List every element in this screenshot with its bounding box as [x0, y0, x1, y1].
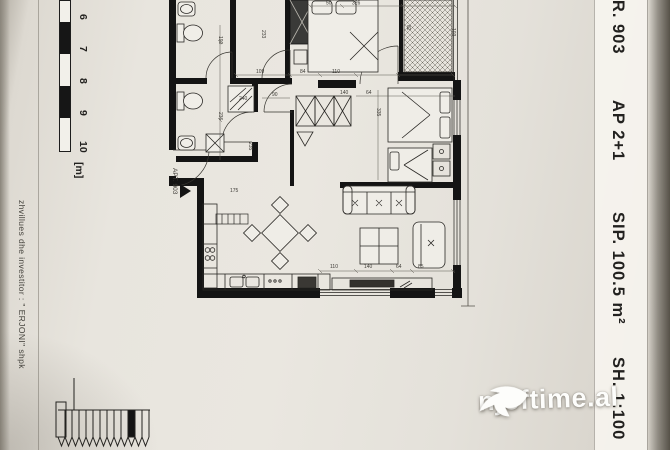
scale-tick-label: 6 [77, 14, 89, 20]
svg-text:190: 190 [217, 36, 223, 45]
scale-tick-label: 7 [77, 46, 89, 52]
paper-right-edge [648, 0, 670, 450]
bird-logo-icon [477, 381, 530, 421]
bathroom-top [177, 2, 203, 42]
svg-text:235: 235 [247, 142, 253, 151]
floor-plan-svg: 109 84 110 90 140 64 50 326 82 103 190 2… [160, 0, 480, 315]
svg-text:82: 82 [405, 25, 411, 31]
scale-tick-label: 8 [77, 78, 89, 84]
scale-unit-label: [m] [73, 162, 85, 178]
svg-text:326: 326 [352, 1, 361, 7]
radiator [216, 214, 248, 224]
surface-label: SIP. 100.5 m² [608, 212, 627, 325]
scale-tick-label: 10 [77, 141, 89, 153]
svg-text:175: 175 [230, 188, 239, 194]
svg-text:233: 233 [260, 30, 266, 39]
bedroom-top [290, 0, 378, 72]
apartment-number-label: NR. 903 [608, 0, 627, 55]
svg-text:APT. 903: APT. 903 [171, 168, 178, 195]
svg-text:335: 335 [375, 108, 381, 117]
svg-text:64: 64 [366, 90, 372, 96]
svg-text:109: 109 [256, 69, 265, 75]
site-sketch-svg [50, 372, 165, 450]
svg-text:140: 140 [340, 90, 349, 96]
watermark: njoftime.al [478, 382, 620, 418]
apartment-type-label: AP 2+1 [608, 100, 627, 161]
balcony [404, 0, 452, 72]
scale-bar [59, 0, 71, 152]
dining-table [244, 197, 317, 270]
scale-segment [60, 22, 70, 54]
scale-tick-label: 9 [77, 110, 89, 116]
svg-text:50: 50 [326, 1, 332, 7]
svg-text:236: 236 [217, 112, 223, 121]
scale-segment [60, 86, 70, 118]
svg-text:84: 84 [300, 69, 306, 75]
paper-fold-line [38, 0, 39, 450]
svg-text:90: 90 [272, 92, 278, 98]
floorplan-photo: 6 7 8 9 10 [m] zhvillues dhe investitor … [0, 0, 670, 450]
svg-text:110: 110 [332, 69, 340, 75]
bedroom-right [296, 88, 452, 182]
svg-text:64: 64 [396, 264, 402, 270]
svg-text:240: 240 [239, 96, 248, 102]
svg-text:140: 140 [364, 264, 373, 270]
svg-text:103: 103 [450, 28, 456, 37]
svg-text:85: 85 [418, 264, 424, 270]
developer-text: zhvillues dhe investitor : " ERJONI" shp… [17, 200, 27, 369]
living-room [332, 186, 445, 290]
svg-text:110: 110 [330, 264, 338, 270]
survey-lines [461, 0, 475, 306]
